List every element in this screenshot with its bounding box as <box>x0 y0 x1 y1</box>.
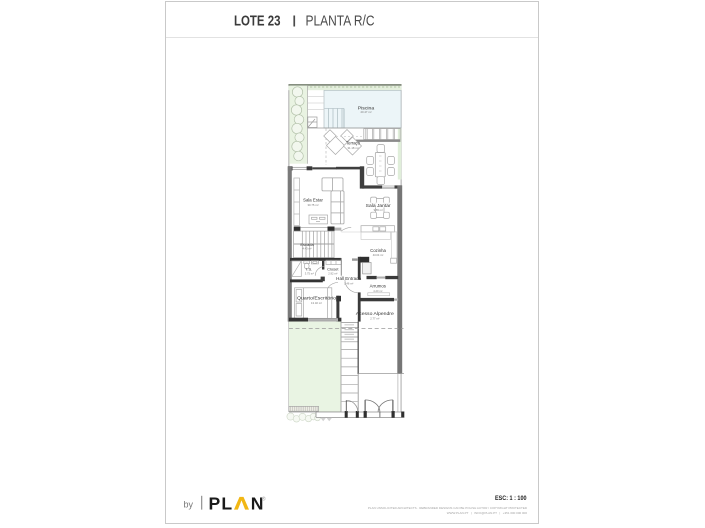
svg-text:Terraço: Terraço <box>346 141 361 146</box>
svg-text:WWW.PLAN.PT | INFO@PLAN.PT: WWW.PLAN.PT | INFO@PLAN.PT | +351 000 00… <box>447 511 528 515</box>
svg-text:Sala Estar: Sala Estar <box>303 198 323 203</box>
svg-text:9.65 m²: 9.65 m² <box>374 208 383 212</box>
svg-text:Acesso Alpendre: Acesso Alpendre <box>356 311 395 316</box>
svg-text:2.92 m²: 2.92 m² <box>328 271 337 275</box>
svg-text:PL: PL <box>209 494 234 514</box>
svg-text:43.04 m²: 43.04 m² <box>373 253 384 257</box>
svg-text:by: by <box>184 500 194 510</box>
svg-text:Escada: Escada <box>300 242 314 247</box>
svg-text:Cozinha: Cozinha <box>370 248 386 253</box>
svg-text:PLAN UNSOLICITED ARCHITECTS ·: PLAN UNSOLICITED ARCHITECTS · REBRANDED … <box>368 506 528 510</box>
svg-text:®: ® <box>262 496 266 503</box>
svg-text:20.47 m²: 20.47 m² <box>360 110 371 114</box>
svg-text:13.32 m²: 13.32 m² <box>311 301 322 305</box>
svg-text:Arrumos: Arrumos <box>370 284 386 289</box>
svg-text:I.S.: I.S. <box>306 267 312 272</box>
svg-text:4.20 m²: 4.20 m² <box>373 289 382 293</box>
svg-text:2.77 m²: 2.77 m² <box>370 316 379 320</box>
svg-text:Sala Jantar: Sala Jantar <box>366 203 392 208</box>
svg-text:Quarto/Escritório: Quarto/Escritório <box>297 295 337 300</box>
svg-text:4.43 m²: 4.43 m² <box>302 247 311 251</box>
svg-text:PLANTA R/C: PLANTA R/C <box>306 14 375 30</box>
svg-text:31.18 m²: 31.18 m² <box>347 146 358 150</box>
svg-text:LOTE 23: LOTE 23 <box>234 14 281 30</box>
svg-text:ESC: 1 : 100: ESC: 1 : 100 <box>495 495 527 502</box>
svg-text:3.75 m²: 3.75 m² <box>305 271 314 275</box>
svg-text:30.75 m²: 30.75 m² <box>307 203 318 207</box>
svg-text:Closet: Closet <box>327 267 339 272</box>
